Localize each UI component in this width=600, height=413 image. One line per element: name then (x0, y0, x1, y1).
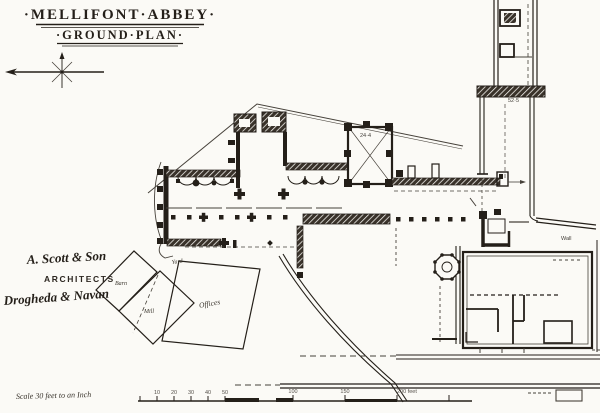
architect-inscription: A. Scott & Son ARCHITECTS Drogheda & Nav… (2, 248, 115, 308)
north-arrow-icon (5, 52, 104, 88)
scale-tick-label: 40 (205, 390, 211, 396)
plan-sheet: ·MELLIFONT·ABBEY· ·GROUND·PLAN· (0, 0, 600, 413)
wall-label: Wall (561, 236, 572, 242)
scale-tick-label: 50 (222, 390, 228, 396)
abbey-church: 24·4 (154, 112, 526, 258)
ground-plan-drawing: ·MELLIFONT·ABBEY· ·GROUND·PLAN· (0, 0, 600, 413)
architect-towns: Drogheda & Navan (2, 286, 109, 308)
southeast-building (463, 240, 600, 353)
scale-tick-label: 200 feet (397, 389, 417, 395)
gatehouse-walls (470, 198, 529, 247)
title-block: ·MELLIFONT·ABBEY· ·GROUND·PLAN· (24, 7, 216, 46)
scale-tick-label: 30 (188, 390, 194, 396)
architect-name: A. Scott & Son (25, 248, 106, 267)
dimension-label-east-wall: 52·5 (508, 98, 519, 104)
scale-tick-label: 150 (340, 389, 349, 395)
scale-tick-label: 100 (288, 389, 297, 395)
offices-label: Offices (198, 297, 221, 310)
roads-and-paths (235, 254, 600, 402)
scale-caption: Scale 30 feet to an Inch (16, 390, 92, 401)
barn-label: Barn (115, 281, 127, 287)
architect-role: ARCHITECTS (44, 274, 115, 284)
page-subtitle: ·GROUND·PLAN· (56, 28, 184, 42)
lavabo-octagon (433, 253, 461, 281)
page-title: ·MELLIFONT·ABBEY· (24, 7, 216, 23)
dimension-label-tower: 24·4 (360, 133, 371, 139)
cloister (171, 213, 466, 344)
yard-label: Yard (171, 258, 184, 266)
scale-tick-label: 20 (171, 390, 177, 396)
outbuildings: Barn Mill Offices Yard (96, 251, 260, 349)
scale-tick-label: 10 (154, 390, 160, 396)
east-wall: Wall (536, 218, 596, 242)
mill-label: Mill (143, 309, 154, 315)
northeast-precinct-walls: 52·5 (477, 0, 545, 221)
